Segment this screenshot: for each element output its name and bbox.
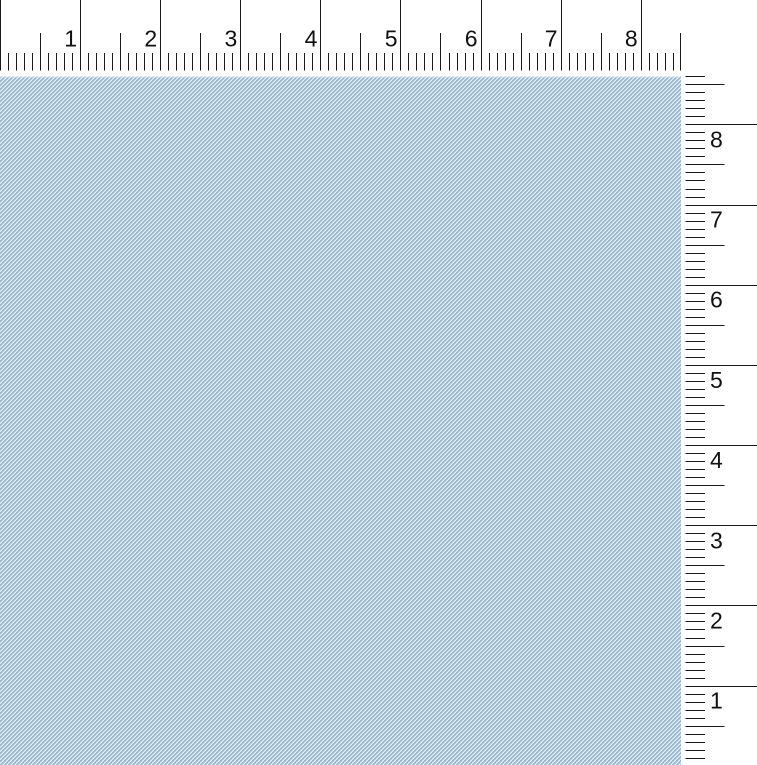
svg-text:1: 1 [64, 26, 77, 52]
svg-text:6: 6 [465, 26, 478, 52]
svg-text:7: 7 [545, 26, 558, 52]
svg-text:2: 2 [710, 607, 723, 633]
svg-text:3: 3 [225, 26, 238, 52]
svg-text:6: 6 [710, 287, 723, 313]
svg-text:1: 1 [710, 688, 723, 714]
svg-text:4: 4 [710, 447, 723, 473]
svg-text:8: 8 [710, 126, 723, 152]
svg-text:8: 8 [625, 26, 638, 52]
svg-text:5: 5 [710, 367, 723, 393]
svg-text:5: 5 [385, 26, 398, 52]
svg-text:7: 7 [710, 207, 723, 233]
svg-text:3: 3 [710, 527, 723, 553]
svg-text:2: 2 [144, 26, 157, 52]
svg-text:4: 4 [305, 26, 318, 52]
